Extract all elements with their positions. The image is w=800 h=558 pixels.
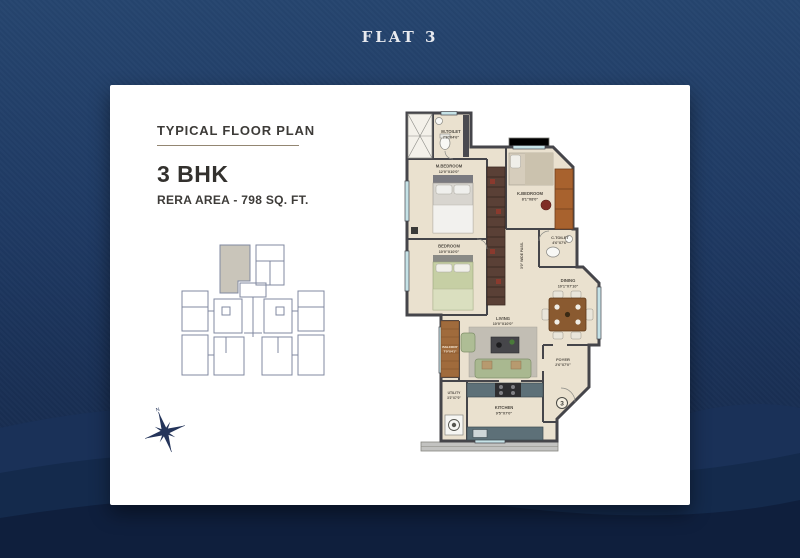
room-label-m-bedroom: M.BEDROOM: [436, 164, 463, 169]
rera-area-text: RERA AREA - 798 SQ. FT.: [157, 193, 315, 207]
room-label-balcony: BALCONY: [442, 345, 458, 349]
utility-fixtures: [445, 415, 463, 435]
page-title: FLAT 3: [0, 28, 800, 46]
unit-number-badge: 3: [557, 398, 568, 409]
compass-north-label: N: [155, 407, 161, 414]
living-set: [461, 327, 537, 378]
passage-label: 3'0" WIDE PASS.: [520, 242, 524, 269]
passage-wardrobe: [487, 167, 505, 305]
compass-icon: N: [140, 407, 190, 457]
room-dim-living: 10'0"X10'0": [493, 322, 514, 326]
room-label-c-toilet: C.TOILET: [551, 235, 569, 240]
heading-divider: [157, 145, 299, 146]
room-label-bedroom: BEDROOM: [438, 244, 460, 249]
room-label-utility: UTILITY: [448, 391, 462, 395]
config-title: 3 BHK: [157, 161, 315, 188]
room-label-m-toilet: M.TOILET: [441, 129, 461, 134]
room-dim-c-toilet: 4'6"X7'6": [552, 241, 568, 245]
room-dim-bedroom: 10'0"X10'0": [439, 250, 460, 254]
room-label-living: LIVING: [496, 316, 510, 321]
brochure-page: FLAT 3 TYPICAL FLOOR PLAN 3 BHK RERA ARE…: [0, 0, 800, 558]
room-label-kitchen: KITCHEN: [495, 405, 514, 410]
plan-type-heading: TYPICAL FLOOR PLAN: [157, 123, 315, 138]
key-plan: [178, 237, 328, 387]
wardrobe-closet: [408, 114, 432, 158]
room-dim-m-toilet: 7'6"X4'6": [443, 136, 460, 140]
floor-plan: 3 M.TOILET 7'6"X4'6" M.BEDROOM 12'0"X10'…: [403, 109, 607, 455]
info-block: TYPICAL FLOOR PLAN 3 BHK RERA AREA - 798…: [157, 123, 315, 207]
room-label-k-bedroom: K.BEDROOM: [517, 191, 544, 196]
room-label-foyer: FOYER: [556, 357, 570, 362]
room-label-dining: DINING: [561, 278, 576, 283]
room-dim-m-bedroom: 12'0"X10'0": [439, 170, 460, 174]
key-plan-highlighted-unit: [220, 245, 250, 293]
room-dim-k-bedroom: 8'1"X8'0": [522, 198, 539, 202]
room-dim-foyer: 2'6"X7'0": [555, 363, 571, 367]
floor-plan-card: TYPICAL FLOOR PLAN 3 BHK RERA AREA - 798…: [110, 85, 690, 505]
room-dim-balcony: 7'0"X4'1": [444, 350, 458, 354]
room-dim-utility: 3'2"X7'0": [447, 396, 461, 400]
svg-text:3: 3: [560, 400, 564, 407]
kids-wardrobe: [555, 169, 573, 229]
room-dim-dining: 10'1"X7'10": [558, 285, 579, 289]
room-dim-kitchen: 9'5"X7'0": [496, 412, 513, 416]
